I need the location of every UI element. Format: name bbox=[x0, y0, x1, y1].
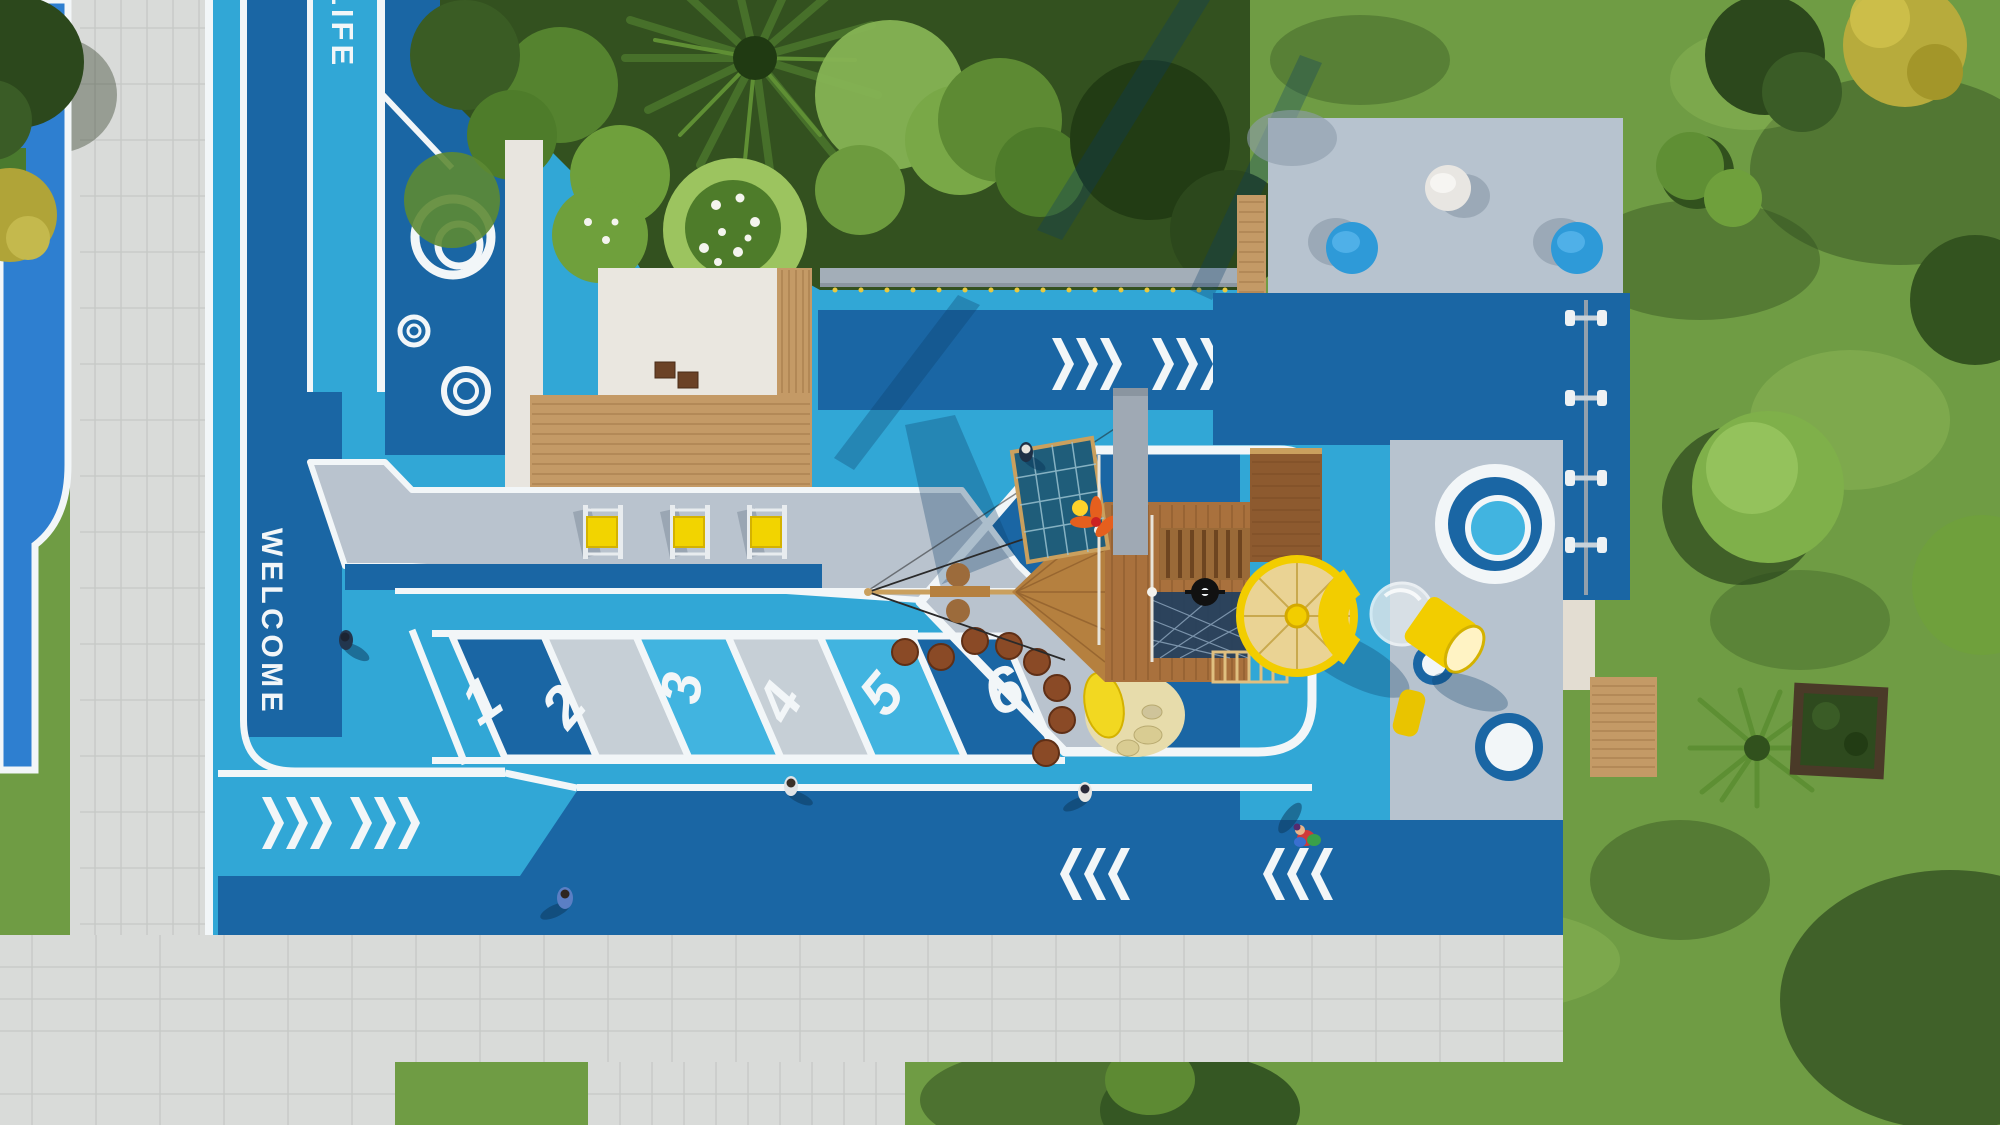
yellow-small-tree-leaf bbox=[6, 216, 50, 260]
yellow-ball bbox=[1072, 500, 1088, 516]
hopscotch-number: 3 bbox=[648, 670, 713, 707]
court-left-border bbox=[205, 0, 213, 935]
paved-path-bottom-left bbox=[0, 935, 395, 1125]
wood-walkway bbox=[1237, 195, 1266, 302]
target-rings-large bbox=[1435, 464, 1555, 584]
seating-platform bbox=[1247, 110, 1623, 302]
planter-crate bbox=[655, 362, 675, 378]
planter-crate bbox=[678, 372, 698, 388]
dark-lane-left bbox=[247, 0, 307, 392]
playground-aerial-render: LIFE WELCOME bbox=[0, 0, 2000, 1125]
tree-shadow-on-platform bbox=[1247, 110, 1337, 166]
zip-tower-panel bbox=[1113, 388, 1148, 555]
light-bush bbox=[815, 145, 905, 235]
planter-box bbox=[1790, 683, 1889, 780]
ship-bridge bbox=[1160, 528, 1250, 580]
target-rings-medium bbox=[1475, 713, 1543, 781]
upper-dark-band bbox=[818, 310, 1240, 410]
welcome-text: WELCOME bbox=[255, 528, 288, 716]
life-text: LIFE bbox=[325, 0, 360, 69]
dark-strip bbox=[345, 564, 822, 590]
panel-overhang-tree bbox=[404, 152, 500, 248]
playground-scene: LIFE WELCOME bbox=[0, 0, 2000, 1125]
